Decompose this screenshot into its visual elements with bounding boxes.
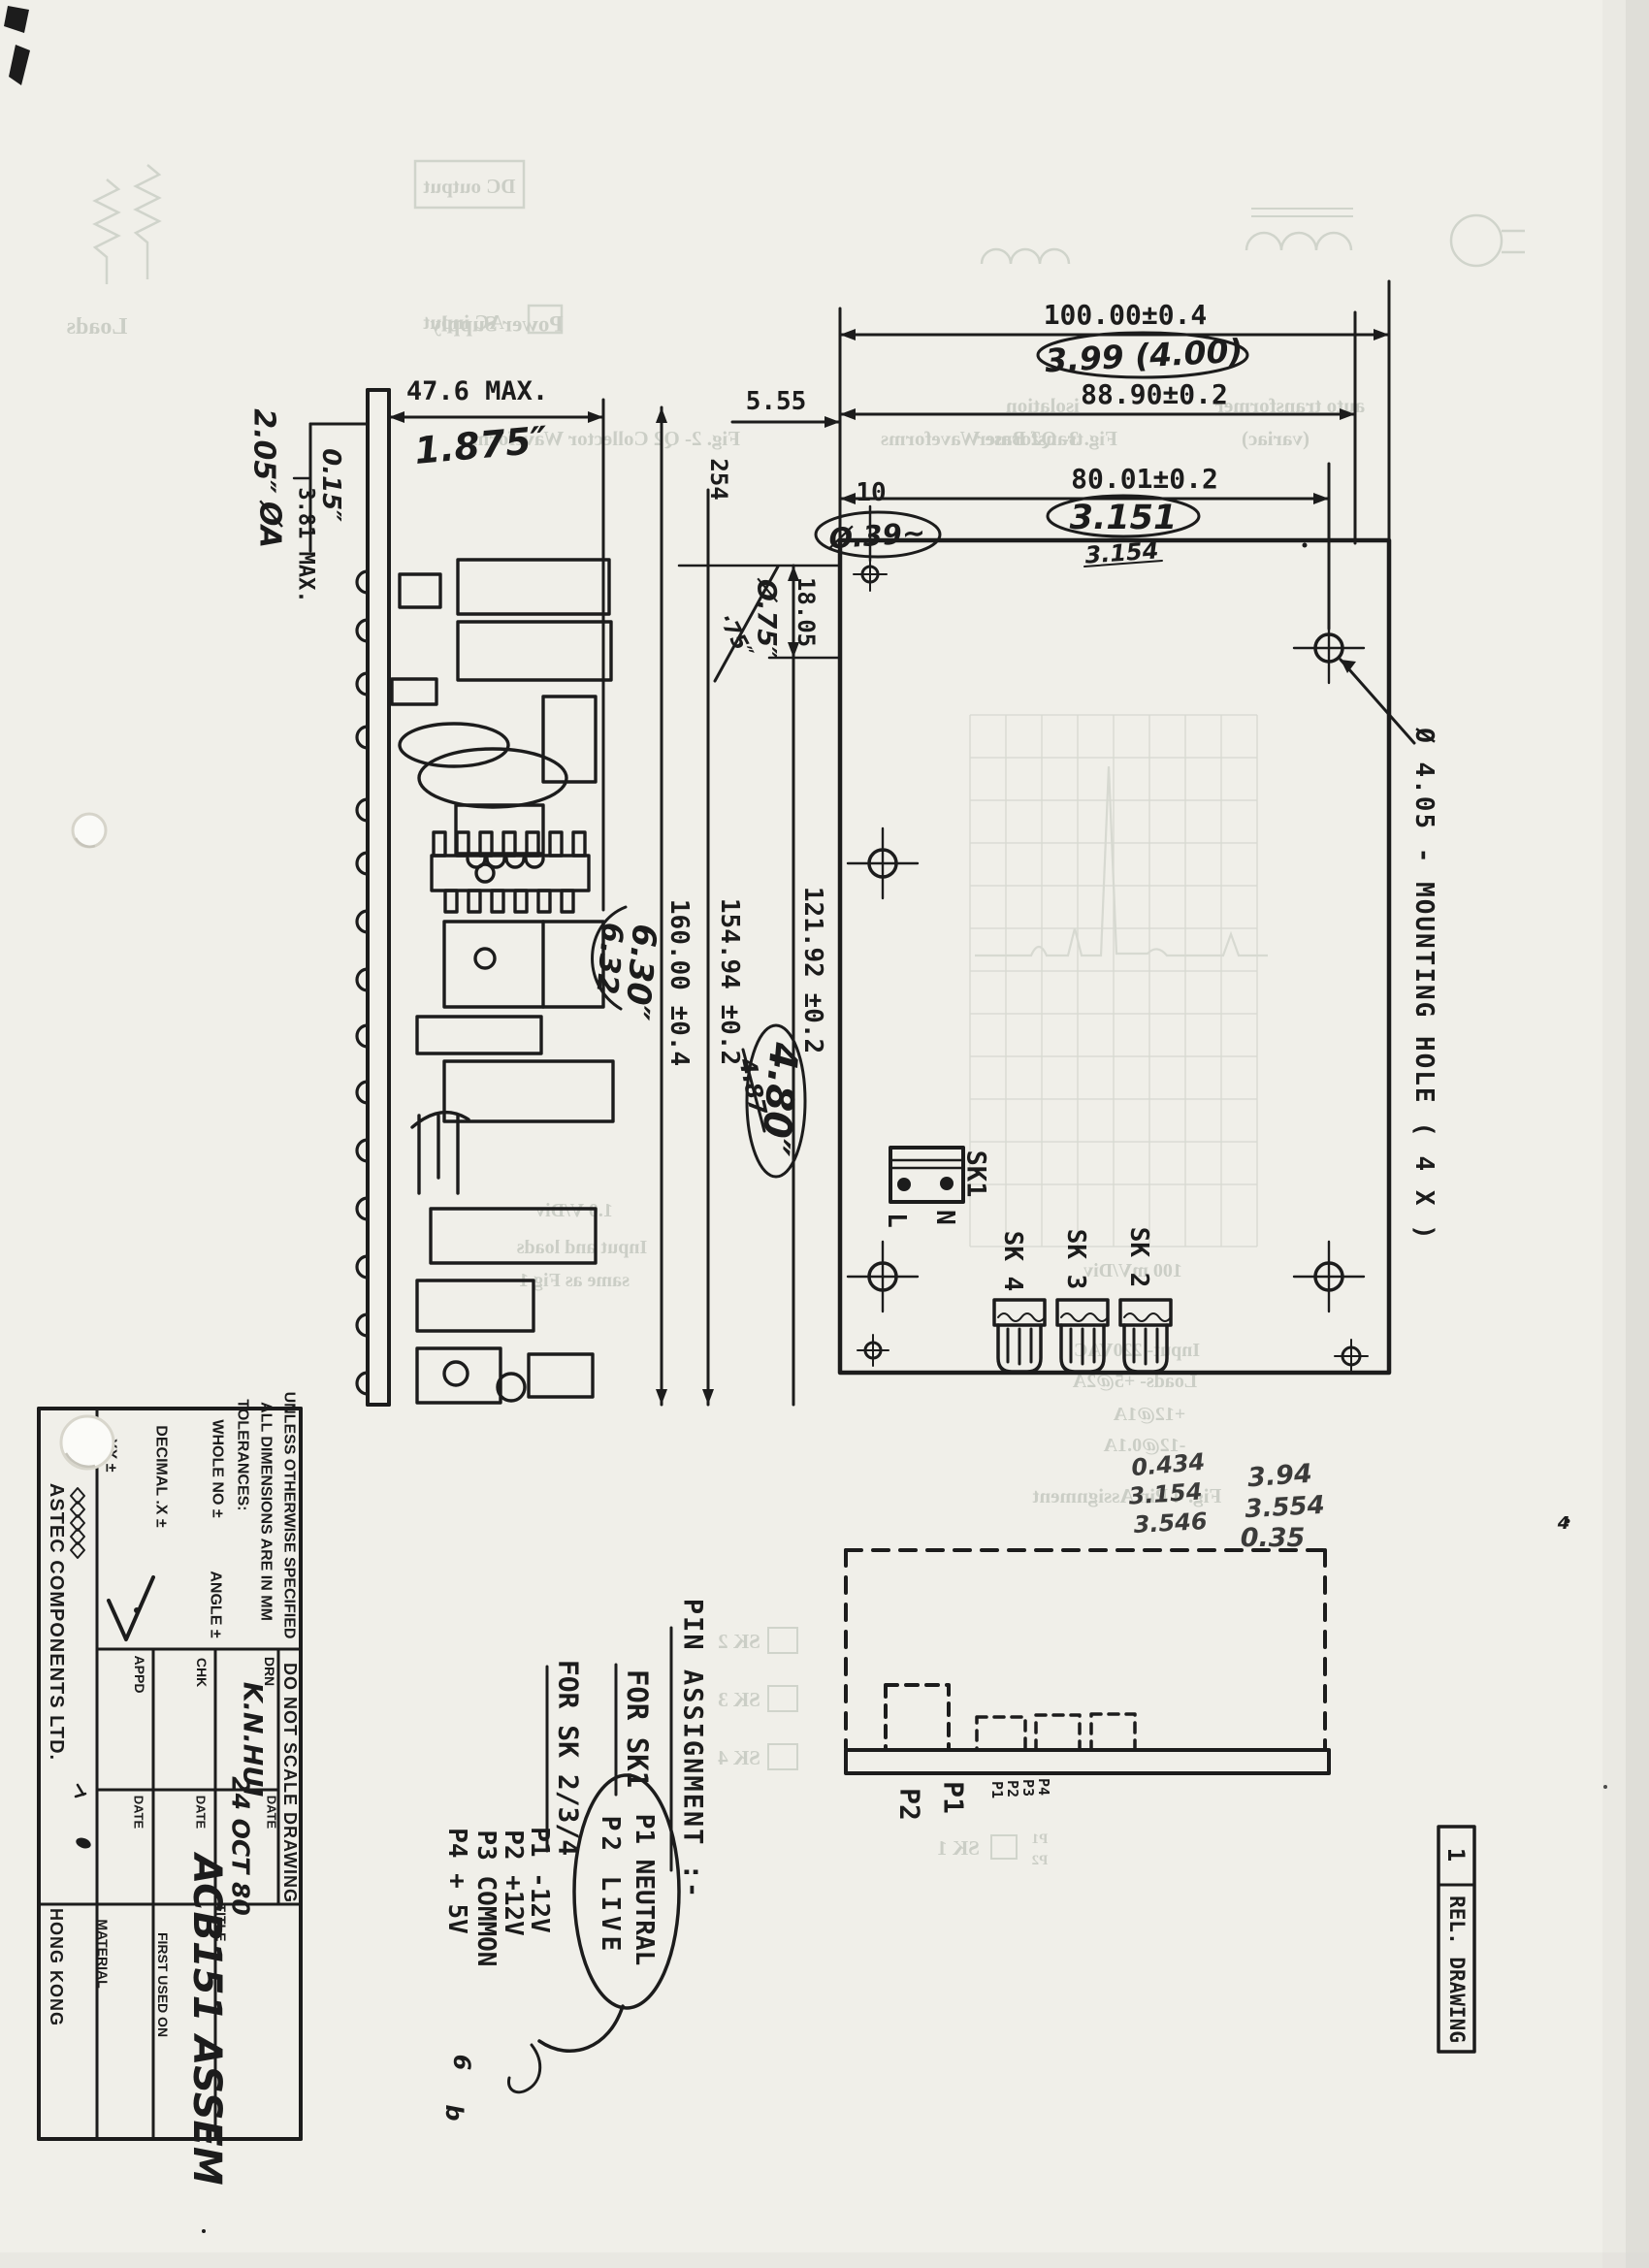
hw-loop — [574, 1775, 679, 2008]
ghost-setting-4: +12@1A — [1113, 1404, 1185, 1425]
p2-label: P2 — [894, 1788, 926, 1821]
pcb-outline — [840, 540, 1389, 1373]
hw-num-left-2: 3.154 — [1128, 1477, 1204, 1509]
ghost-sk3-box — [768, 1686, 797, 1711]
pin-small-label: P3 — [1019, 1779, 1037, 1797]
ghost-resistor-icon — [136, 165, 159, 279]
for-sk234-heading: FOR SK 2/3/4 — [553, 1660, 585, 1856]
arrowhead-icon — [1374, 329, 1389, 340]
pin-small-label: P2 — [1004, 1780, 1021, 1798]
dim-160-label: 160.00 ±0.4 — [664, 899, 694, 1066]
dim-1805-label: 18.05 — [792, 577, 820, 647]
ghost-scope-note-1: 1.0 V/Div — [535, 1200, 613, 1221]
arrowhead-icon — [1313, 493, 1329, 504]
arrowhead-icon — [1341, 660, 1356, 673]
hw-205-label: 2.05″ — [247, 408, 281, 494]
dim-555-label: 5.55 — [746, 387, 807, 416]
sk-profile-dashed — [1091, 1714, 1135, 1750]
punch-hole — [61, 1416, 113, 1469]
pin-small-label: P4 — [1035, 1778, 1052, 1796]
ghost-sk3-label: SK 3 — [718, 1688, 760, 1711]
ghost-scope-note-3: same as Fig 1 — [519, 1270, 630, 1291]
sk4-label: SK 4 — [998, 1231, 1027, 1292]
dim-10-label: 10 — [856, 478, 886, 507]
hw-tick-mark — [76, 1785, 85, 1797]
dim-154-label: 154.94 ±0.2 — [715, 898, 744, 1065]
hw-checkmark-icon — [109, 1577, 153, 1639]
mounting-hole-note: Ø 4.05 - MOUNTING HOLE ( 4 X ) — [1409, 727, 1439, 1242]
arrowhead-icon — [840, 408, 856, 420]
dim-80-label: 80.01±0.2 — [1071, 463, 1218, 495]
ghost-scope-note-2: Input and loads — [517, 1237, 648, 1258]
arrowhead-icon — [824, 416, 840, 428]
ghost-sk2-label: SK 2 — [718, 1630, 760, 1653]
ghost-sk2-box — [768, 1628, 797, 1653]
hw-loop-tail — [539, 2006, 623, 2051]
company-location: HONG KONG — [47, 1908, 66, 2026]
material-label: MATERIAL — [95, 1919, 111, 1989]
first-used-on-label: FIRST USED ON — [155, 1932, 171, 2037]
hw-check-dot — [134, 1607, 140, 1613]
sk2-label: SK 2 — [1124, 1227, 1153, 1288]
sk3-label: SK 3 — [1061, 1229, 1090, 1290]
scribble-6: 6 — [448, 2055, 475, 2071]
drawing-canvas: Loads DC output AC input Power Supply Fi… — [0, 0, 1649, 2268]
hw-num-right-2: 3.554 — [1245, 1491, 1326, 1524]
dim-254-label: 254 — [705, 458, 732, 500]
hw-conversion-numbers: 0.434 3.154 3.546 3.94 3.554 0.35 — [1128, 1448, 1326, 1553]
ghost-p2-label: P2 — [1032, 1853, 1049, 1868]
date-label-3: DATE — [132, 1796, 146, 1830]
pin-small-label: P1 — [988, 1781, 1006, 1798]
ghost-sk4-box — [768, 1744, 797, 1769]
hw-num-right-1: 3.94 — [1246, 1459, 1313, 1494]
hw-1875-label: 1.875″ — [413, 418, 550, 472]
arrowhead-icon — [840, 493, 856, 504]
ghost-dc-output-label: DC output — [423, 175, 515, 198]
ghost-transformer-label: transformer — [977, 427, 1083, 450]
arrowhead-icon — [389, 411, 404, 423]
pcb-profile-bar — [846, 1750, 1329, 1773]
hw-num-left-1: 0.434 — [1130, 1448, 1206, 1482]
sk1-pin2-note: P2 LIVE — [596, 1816, 625, 1957]
tol-decimal-label: DECIMAL .X ± — [153, 1425, 170, 1528]
p1-label: P1 — [938, 1781, 970, 1814]
sk1-label: SK1 — [961, 1150, 991, 1198]
sk234-pin4-note: P4 + 5V — [442, 1828, 471, 1934]
dim-88-label: 88.90±0.2 — [1081, 378, 1228, 410]
scribble-b: b — [440, 2104, 468, 2121]
speck — [1566, 1519, 1570, 1524]
revision-number: 1 — [1442, 1848, 1470, 1862]
sk1-connector: SK1 L N — [882, 1148, 991, 1228]
ghost-variac-label: (variac) — [1242, 427, 1309, 450]
hw-dia-label: ØA — [253, 500, 287, 548]
arrowhead-icon — [588, 411, 603, 423]
astec-diamonds-logo-icon — [71, 1488, 84, 1558]
tol-whole-label: WHOLE NO ± — [210, 1419, 226, 1517]
ghost-scope-grid — [970, 715, 1268, 1247]
dim-381-label: 3.81 MAX. — [294, 487, 318, 602]
dim-121-label: 121.92 ±0.2 — [798, 887, 827, 1053]
mounting-holes — [848, 613, 1368, 1373]
company-name: ASTEC COMPONENTS LTD. — [46, 1483, 67, 1761]
ghost-loads-label: Loads — [67, 314, 128, 340]
ghost-sk1-box — [991, 1835, 1017, 1859]
scanned-drawing-page: Loads DC output AC input Power Supply Fi… — [0, 0, 1649, 2268]
sk1-pin1-note: P1 NEUTRAL — [630, 1814, 659, 1966]
corner-mark — [4, 6, 29, 33]
chk-label: CHK — [194, 1658, 210, 1687]
arrowhead-icon — [840, 329, 856, 340]
title-value: ACB151 ASSEM — [184, 1851, 229, 2185]
hw-632-label: 6.32 — [589, 922, 629, 996]
pin-assignment-note: PIN ASSIGNMENT :- FOR SK1 P1 NEUTRAL P2 … — [440, 1599, 708, 2122]
date-label-2: DATE — [194, 1796, 209, 1830]
for-sk1-heading: FOR SK1 — [621, 1669, 654, 1788]
arrowhead-icon — [656, 1389, 667, 1405]
side-profile-view: P2 P1 P1 P2 P3 P4 — [846, 1550, 1329, 1821]
hw-3151-label: 3.151 — [1070, 499, 1178, 537]
scan-edge-shade — [0, 2252, 1649, 2268]
sk234-pin1-note: P1 -12V — [525, 1827, 554, 1933]
pin-assignment-heading: PIN ASSIGNMENT :- — [678, 1599, 708, 1899]
plan-view: 100.00±0.4 3.99 (4.00) 88.90±0.2 80.01±0… — [589, 281, 1569, 1553]
speck — [202, 2229, 206, 2233]
ghost-resistor-icon — [95, 179, 118, 284]
corner-mark — [9, 45, 30, 85]
sk4-connector: SK 4 — [994, 1231, 1045, 1372]
hw-num-left-3: 3.546 — [1133, 1507, 1208, 1539]
title-block: UNLESS OTHERWISE SPECIFIED ALL DIMENSION… — [39, 1392, 301, 2186]
hw-015-label: 0.15″ — [316, 448, 345, 522]
spec-line-1: UNLESS OTHERWISE SPECIFIED — [281, 1392, 298, 1639]
date-label-1: DATE — [265, 1796, 279, 1830]
ghost-coil-icon — [1246, 233, 1351, 250]
scribble-curl — [508, 2045, 539, 2092]
neutral-pin-label: N — [930, 1210, 959, 1225]
ghost-p1-label: P1 — [1032, 1831, 1049, 1847]
date-value: 24 OCT 80 — [227, 1776, 255, 1916]
ghost-coil-icon — [982, 249, 1069, 264]
speck — [1303, 543, 1308, 548]
hw-stray-mark: 4 — [1557, 1513, 1570, 1534]
arrowhead-icon — [656, 407, 667, 423]
tol-angle-label: ANGLE ± — [208, 1571, 224, 1637]
ghost-sk1-label: SK 1 — [937, 1836, 980, 1860]
scan-edge-shade — [1626, 0, 1649, 2268]
spec-line-3: TOLERANCES: — [235, 1399, 251, 1510]
do-not-scale-label: DO NOT SCALE DRAWING — [280, 1663, 300, 1903]
hw-039-label: Ø.39~ — [825, 516, 926, 556]
paper-artifacts — [0, 0, 1649, 2268]
ink-blob — [75, 1836, 92, 1851]
leader-line — [1341, 660, 1414, 743]
sk234-pin3-note: P3 COMMON — [471, 1831, 501, 1967]
revision-table: 1 REL. DRAWING — [1439, 1827, 1474, 2052]
ghost-sk4-label: SK 4 — [718, 1746, 760, 1769]
ghost-setting-2: Input- 220VAC — [1074, 1340, 1200, 1361]
ghost-power-supply-label: Power Supply — [430, 312, 563, 337]
dim-476-label: 47.6 MAX. — [406, 376, 548, 406]
sk234-pin2-note: P2 +12V — [499, 1830, 528, 1936]
appd-label: APPD — [132, 1656, 147, 1694]
spec-line-2: ALL DIMENSIONS ARE IN MM — [258, 1402, 275, 1621]
sk1-profile-dashed — [886, 1685, 949, 1750]
revision-label: REL. DRAWING — [1445, 1895, 1469, 2043]
ghost-plug-icon — [1451, 215, 1502, 266]
sk-profile-dashed — [1036, 1715, 1080, 1750]
live-pin-label: L — [882, 1213, 911, 1228]
sk-profile-dashed — [977, 1717, 1025, 1750]
arrowhead-icon — [702, 1389, 714, 1405]
dim-100-label: 100.00±0.4 — [1044, 299, 1208, 331]
